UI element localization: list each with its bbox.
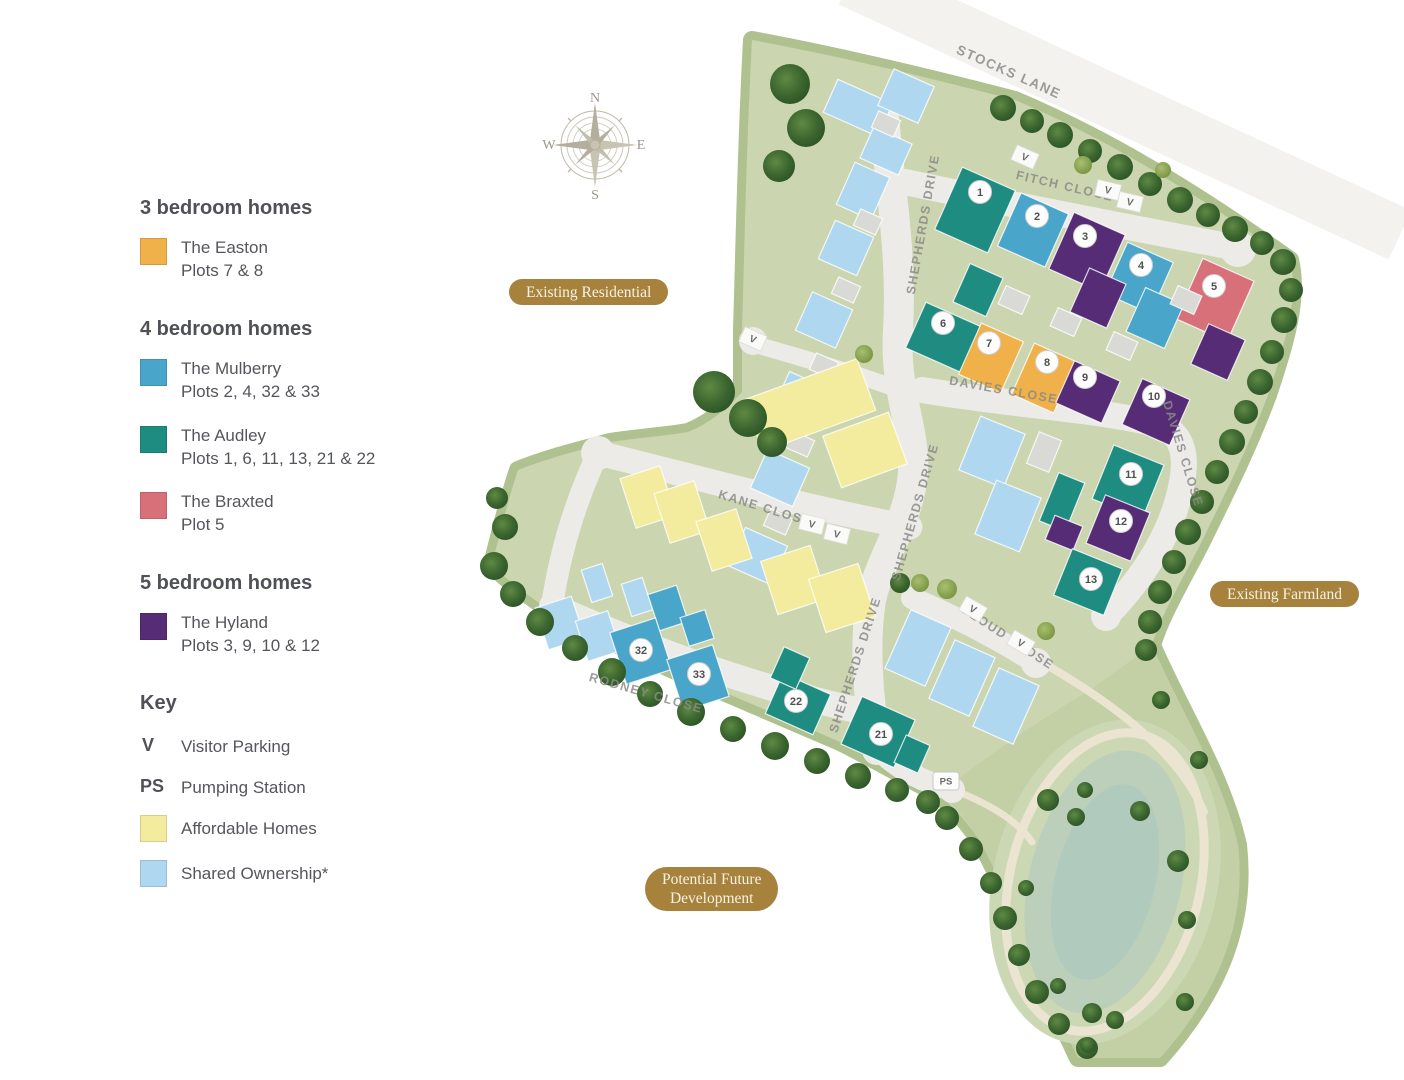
plot-marker-8: 8 [1036, 351, 1059, 374]
tree [1260, 340, 1284, 364]
tree [980, 872, 1002, 894]
tree [1270, 249, 1296, 275]
plot-marker-21: 21 [870, 723, 893, 746]
svg-text:1: 1 [977, 187, 983, 199]
svg-text:3: 3 [1082, 231, 1088, 243]
legend-item-audley: The Audley Plots 1, 6, 11, 13, 21 & 22 [140, 424, 375, 470]
tree [1077, 782, 1093, 798]
legend-item-hyland: The Hyland Plots 3, 9, 10 & 12 [140, 611, 320, 657]
svg-text:6: 6 [940, 318, 946, 330]
tree [845, 763, 871, 789]
compass-east: E [637, 138, 646, 153]
svg-text:21: 21 [875, 729, 887, 741]
plot-marker-1: 1 [969, 181, 992, 204]
plot-marker-2: 2 [1026, 205, 1049, 228]
plot-marker-9: 9 [1074, 366, 1097, 389]
svg-text:33: 33 [693, 669, 705, 681]
pumping-station-symbol: PS [140, 776, 164, 797]
svg-text:4: 4 [1138, 260, 1145, 272]
tree [1082, 1003, 1102, 1023]
hyland-plots: Plots 3, 9, 10 & 12 [181, 634, 320, 657]
legend-item-mulberry: The Mulberry Plots 2, 4, 32 & 33 [140, 357, 320, 403]
svg-text:PS: PS [940, 777, 953, 788]
shared-ownership-swatch [140, 860, 167, 887]
tree [1155, 162, 1171, 178]
tree [1135, 639, 1157, 661]
existing-farmland-pill: Existing Farmland [1210, 581, 1359, 607]
plot-marker-13: 13 [1080, 568, 1103, 591]
svg-text:32: 32 [635, 645, 647, 657]
tree [1047, 122, 1073, 148]
tree [1067, 808, 1085, 826]
tree [1138, 610, 1162, 634]
tree [1167, 850, 1189, 872]
potential-future-line2: Development [670, 889, 754, 908]
svg-text:22: 22 [790, 696, 802, 708]
plot-marker-32: 32 [630, 639, 653, 662]
braxted-swatch [140, 492, 167, 519]
svg-text:8: 8 [1044, 357, 1050, 369]
legend-heading-3bed: 3 bedroom homes [140, 197, 312, 220]
road-turning-head [581, 436, 615, 470]
mulberry-name: The Mulberry [181, 357, 320, 380]
legend-panel: 3 bedroom homes The Easton Plots 7 & 8 4… [0, 0, 480, 1080]
tree [757, 427, 787, 457]
tree [1130, 801, 1150, 821]
affordable-swatch [140, 815, 167, 842]
tree [1222, 216, 1248, 242]
svg-text:9: 9 [1082, 372, 1088, 384]
tree [500, 581, 526, 607]
tree [1178, 911, 1196, 929]
compass-star [553, 103, 637, 187]
visitor-parking-symbol: V [142, 735, 154, 756]
key-item-affordable: Affordable Homes [140, 813, 317, 844]
pumping-station-label: Pumping Station [181, 776, 306, 799]
svg-text:10: 10 [1148, 391, 1160, 403]
tree [1074, 156, 1092, 174]
tree [720, 716, 746, 742]
tree [761, 732, 789, 760]
tree [1107, 154, 1133, 180]
braxted-name: The Braxted [181, 490, 274, 513]
tree [1205, 460, 1229, 484]
audley-name: The Audley [181, 424, 375, 447]
key-item-visitor: V Visitor Parking [140, 735, 290, 758]
tree [993, 906, 1017, 930]
compass-west: W [542, 138, 556, 153]
tree [1279, 278, 1303, 302]
tree [480, 552, 508, 580]
mulberry-plots: Plots 2, 4, 32 & 33 [181, 380, 320, 403]
tree [804, 748, 830, 774]
easton-plots: Plots 7 & 8 [181, 259, 268, 282]
tree [1152, 691, 1170, 709]
tree [1219, 429, 1245, 455]
tree [937, 579, 957, 599]
legend-item-braxted: The Braxted Plot 5 [140, 490, 274, 536]
tree [486, 487, 508, 509]
affordable-label: Affordable Homes [181, 813, 317, 844]
visitor-parking-label: Visitor Parking [181, 735, 290, 758]
tree [935, 806, 959, 830]
tree [562, 635, 588, 661]
tree [885, 778, 909, 802]
key-item-shared: Shared Ownership* [140, 858, 328, 889]
tree [1020, 109, 1044, 133]
potential-future-line1: Potential Future [662, 870, 761, 889]
plot-marker-33: 33 [688, 663, 711, 686]
svg-text:5: 5 [1211, 281, 1217, 293]
tree [1190, 751, 1208, 769]
svg-text:11: 11 [1125, 469, 1137, 481]
plot-marker-11: 11 [1120, 463, 1143, 486]
plot-marker-22: 22 [785, 690, 808, 713]
tree [1106, 1011, 1124, 1029]
legend-item-easton: The Easton Plots 7 & 8 [140, 236, 268, 282]
tree [1176, 993, 1194, 1011]
key-heading: Key [140, 692, 177, 715]
tree [959, 837, 983, 861]
pumping-station-marker: PS [933, 772, 959, 790]
tree [1247, 369, 1273, 395]
existing-residential-pill: Existing Residential [509, 279, 668, 305]
svg-text:13: 13 [1085, 574, 1097, 586]
tree [492, 514, 518, 540]
tree [763, 150, 795, 182]
tree [526, 608, 554, 636]
tree [1234, 400, 1258, 424]
tree [1037, 789, 1059, 811]
potential-future-development-pill: Potential Future Development [645, 867, 778, 911]
tree [1162, 550, 1186, 574]
tree [990, 95, 1016, 121]
tree [1048, 1013, 1070, 1035]
plot-marker-12: 12 [1110, 510, 1133, 533]
svg-text:12: 12 [1115, 516, 1127, 528]
tree [1037, 622, 1055, 640]
braxted-plots: Plot 5 [181, 513, 274, 536]
tree [855, 345, 873, 363]
compass-south: S [591, 188, 599, 203]
legend-heading-4bed: 4 bedroom homes [140, 318, 312, 341]
plot-marker-4: 4 [1130, 254, 1153, 277]
compass-rose: N E S W [542, 91, 645, 203]
tree [1080, 1037, 1096, 1053]
tree [911, 574, 929, 592]
site-plan-page: STOCKS LANEFITCH CLOSESHEPHERDS DRIVEDAV… [0, 0, 1404, 1080]
tree [916, 790, 940, 814]
existing-residential-label: Existing Residential [526, 283, 651, 302]
tree [1250, 231, 1274, 255]
audley-swatch [140, 426, 167, 453]
plot-marker-10: 10 [1143, 385, 1166, 408]
plot-marker-7: 7 [978, 332, 1001, 355]
map-terrain [492, 0, 1400, 1069]
easton-name: The Easton [181, 236, 268, 259]
tree [1175, 519, 1201, 545]
shared-ownership-label: Shared Ownership* [181, 858, 328, 889]
hyland-swatch [140, 613, 167, 640]
easton-swatch [140, 238, 167, 265]
tree [693, 371, 735, 413]
tree [787, 109, 825, 147]
compass-north: N [590, 91, 600, 106]
plot-marker-3: 3 [1074, 225, 1097, 248]
tree [1050, 978, 1066, 994]
tree [1008, 944, 1030, 966]
tree [1025, 980, 1049, 1004]
tree [1196, 203, 1220, 227]
tree [770, 64, 810, 104]
tree [1018, 880, 1034, 896]
svg-text:7: 7 [986, 338, 992, 350]
legend-heading-5bed: 5 bedroom homes [140, 572, 312, 595]
svg-text:2: 2 [1034, 211, 1040, 223]
plot-marker-6: 6 [932, 312, 955, 335]
mulberry-swatch [140, 359, 167, 386]
tree [1271, 307, 1297, 333]
existing-farmland-label: Existing Farmland [1227, 585, 1342, 604]
tree [729, 399, 767, 437]
hyland-name: The Hyland [181, 611, 320, 634]
audley-plots: Plots 1, 6, 11, 13, 21 & 22 [181, 447, 375, 470]
tree [1148, 580, 1172, 604]
key-item-pumping: PS Pumping Station [140, 776, 306, 799]
plot-marker-5: 5 [1203, 275, 1226, 298]
tree [1167, 187, 1193, 213]
